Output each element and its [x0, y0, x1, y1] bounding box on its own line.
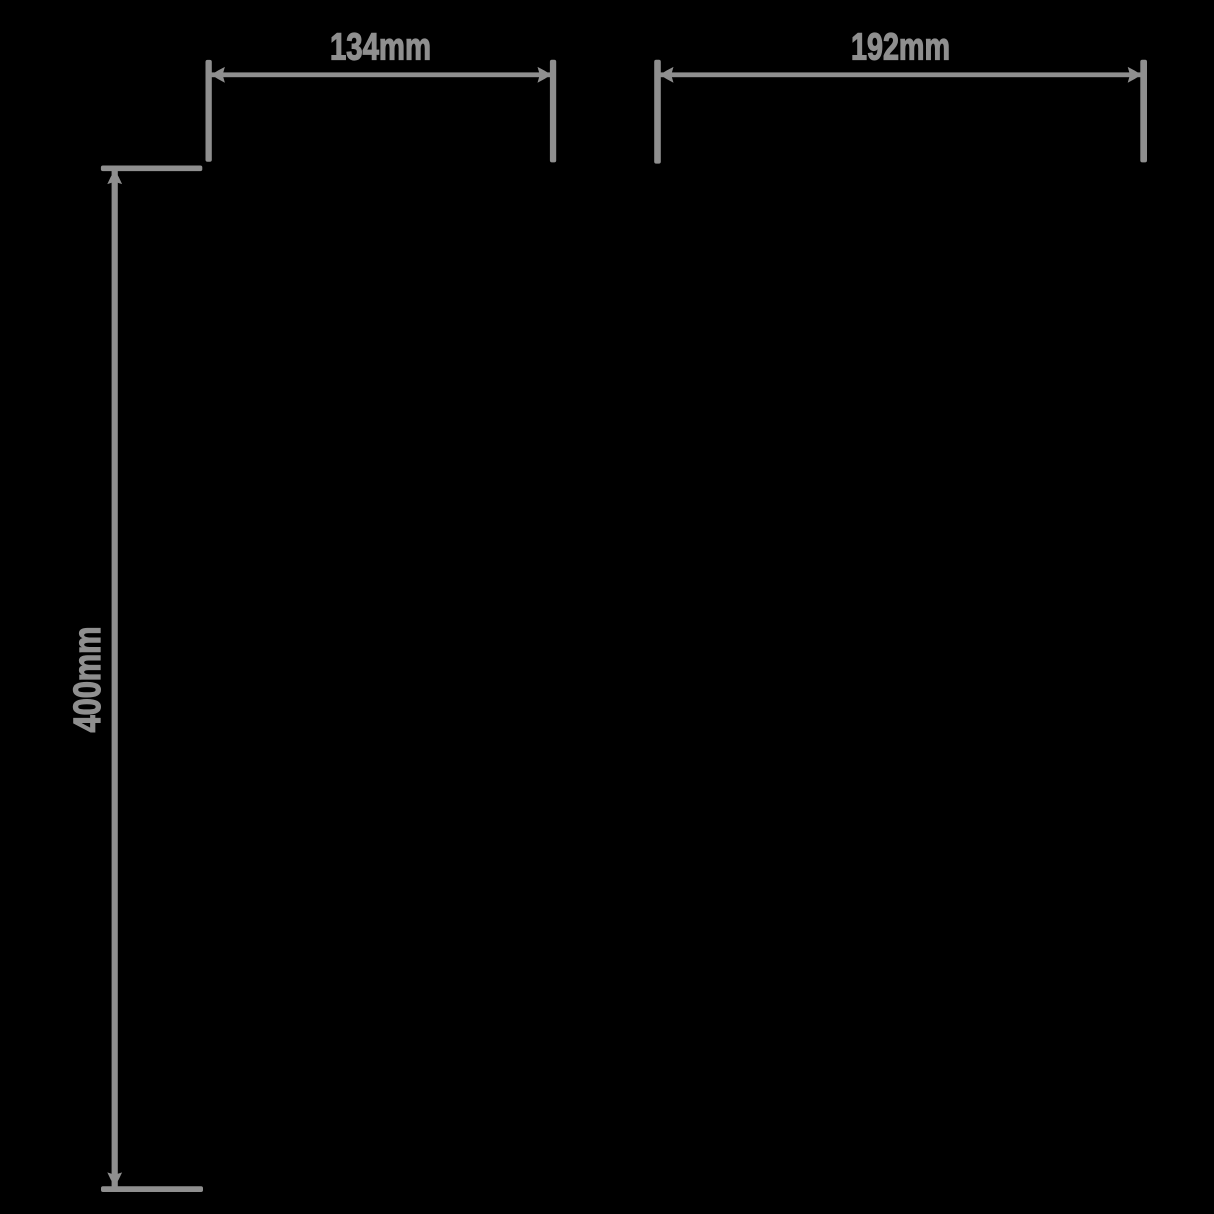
- svg-text:134mm: 134mm: [330, 26, 431, 68]
- svg-text:400mm: 400mm: [67, 627, 109, 733]
- svg-text:192mm: 192mm: [851, 26, 950, 68]
